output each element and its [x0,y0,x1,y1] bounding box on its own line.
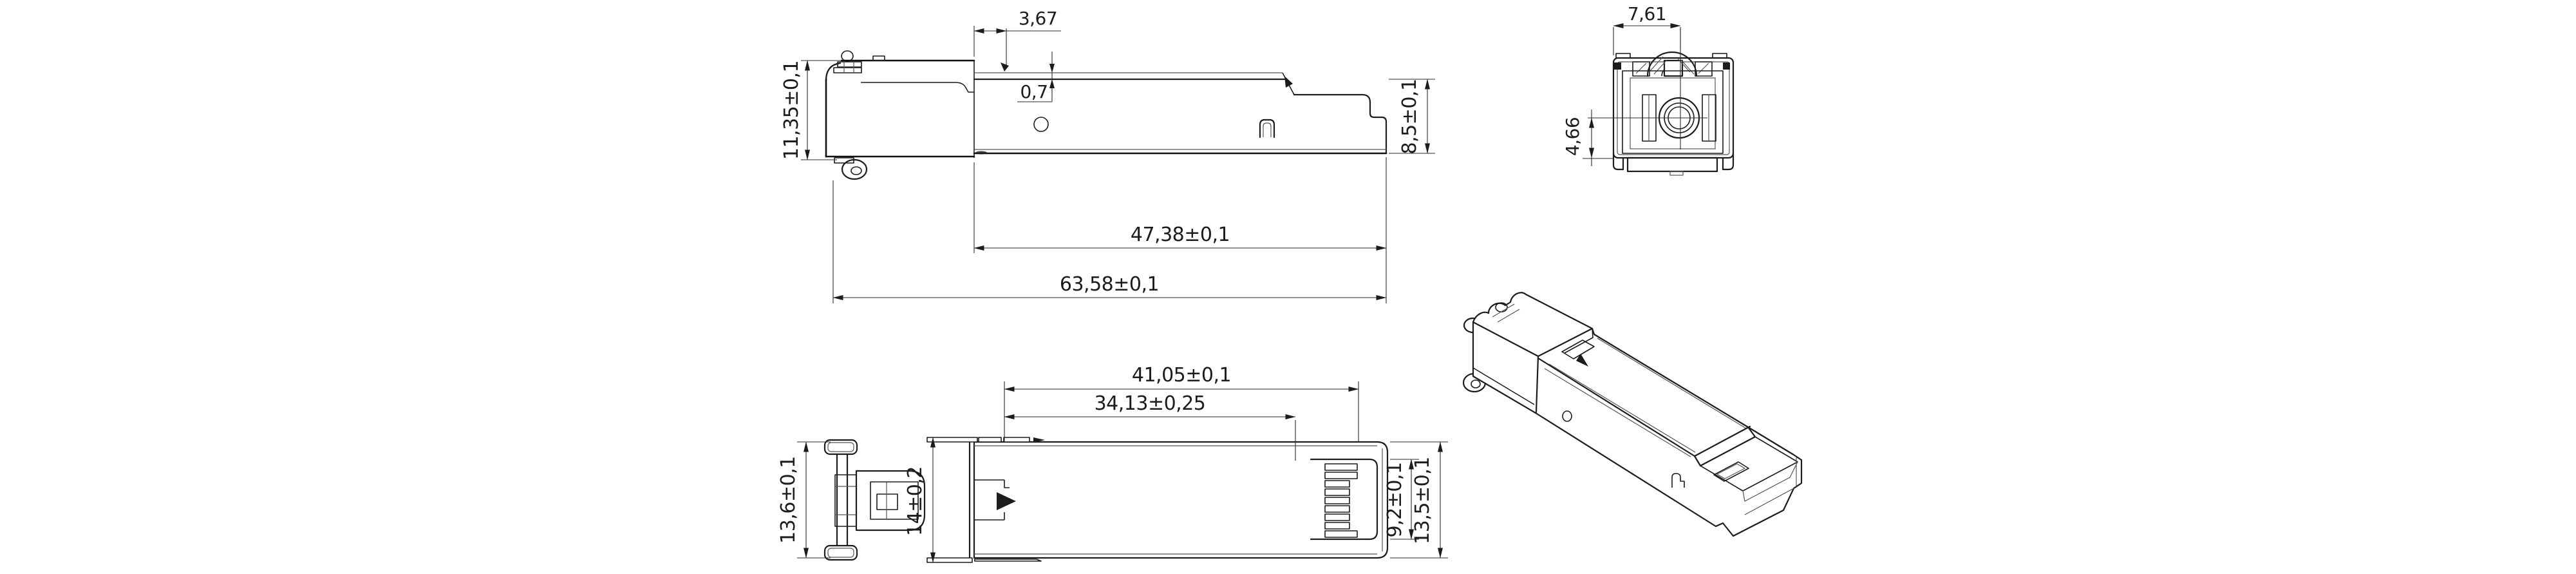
rail-slot-bottom-2 [975,559,1041,561]
dim-front-height: 11,35±0,1 [780,61,841,160]
dim-length-to-stop-label: 34,13±0,25 [1095,392,1206,415]
dim-step-offset: 3,67 [974,8,1061,72]
slider-detent [877,494,898,510]
dim-rear-width-label: 13,5±0,1 [1411,457,1434,544]
rear-step-profile [1294,95,1386,153]
dim-overall-length-label: 63,58±0,1 [1060,273,1159,296]
bail-seat-right [1695,62,1712,76]
isometric-view [1463,292,1801,536]
dim-step-offset-label: 3,67 [1019,8,1057,29]
staple-cutout [1260,120,1274,137]
contact-fingers [1325,464,1357,537]
drawing-canvas: 11,35±0,1 3,67 0,7 47,38±0,1 63,58±0,1 [0,0,2576,574]
dim-cage-length-label: 47,38±0,1 [1131,224,1230,246]
drawing-sheet: 11,35±0,1 3,67 0,7 47,38±0,1 63,58±0,1 [0,0,2576,574]
top-view: 13,6±0,1 14±0,2 41,05±0,1 34,13±0,25 9,2… [777,364,1448,562]
rail-slot-bottom-1 [927,558,972,562]
slider-base [835,475,856,526]
dim-length-to-pad-end-label: 41,05±0,1 [1132,364,1231,387]
bail-wire-lines [837,454,847,546]
bottom-bracket [1628,158,1717,171]
side-view: 11,35±0,1 3,67 0,7 47,38±0,1 63,58±0,1 [780,8,1435,303]
dim-rail-width: 14±0,2 [904,437,933,562]
latch-clevis-upper [838,62,861,67]
dim-lip-height: 0,7 [1017,52,1055,102]
dim-front-width: 13,6±0,1 [777,442,831,558]
dim-pad-area-width-label: 9,2±0,1 [1384,462,1406,537]
bail-ring-inner [851,167,861,175]
dim-center-to-bottom-label: 4,66 [1562,117,1583,156]
latch-clevis-lower [834,68,861,73]
dim-overall-length: 63,58±0,1 [833,180,1386,303]
bracket-tab-top-inner [828,443,854,452]
dim-body-height-label: 8,5±0,1 [1398,79,1421,154]
dim-length-to-stop: 34,13±0,25 [1004,392,1295,461]
pivot-pin-left [1614,62,1621,70]
slider-base-lines [835,486,856,515]
dim-front-width-label: 13,6±0,1 [777,456,800,544]
collar-lines [970,442,974,558]
bracket-tab-bottom-inner [828,548,854,557]
weld-mark [975,151,987,155]
rail-slot-top-2 [979,437,1001,442]
staple-cutout-inner [1263,123,1271,137]
dim-edge-to-center-label: 7,61 [1628,3,1666,24]
pad-region-outline [1311,459,1377,539]
rail-slot-top-1 [927,437,977,442]
dim-front-height-label: 11,35±0,1 [780,61,803,160]
dim-rail-width-label: 14±0,2 [904,466,926,536]
dim-edge-to-center: 7,61 [1613,3,1680,55]
block-step-line [861,82,974,92]
front-view: 7,61 4,66 [1562,3,1733,175]
bail-center-block [1664,61,1682,76]
iso-bail-loop-inner [1471,380,1480,388]
side-hole [1034,117,1048,131]
dim-lip-height-label: 0,7 [1020,81,1048,102]
rail-slot-top-3 [1004,437,1029,442]
dim-body-height: 8,5±0,1 [1389,79,1435,154]
pivot-pin-right [1723,62,1730,70]
rear-notch-tab [1284,76,1293,88]
body-inner-lines [974,446,1382,554]
iso-silhouette [1473,292,1801,536]
latch-pivot-knob [841,51,853,61]
latch-tab-arrow [997,492,1016,510]
dim-cage-length: 47,38±0,1 [974,157,1386,253]
